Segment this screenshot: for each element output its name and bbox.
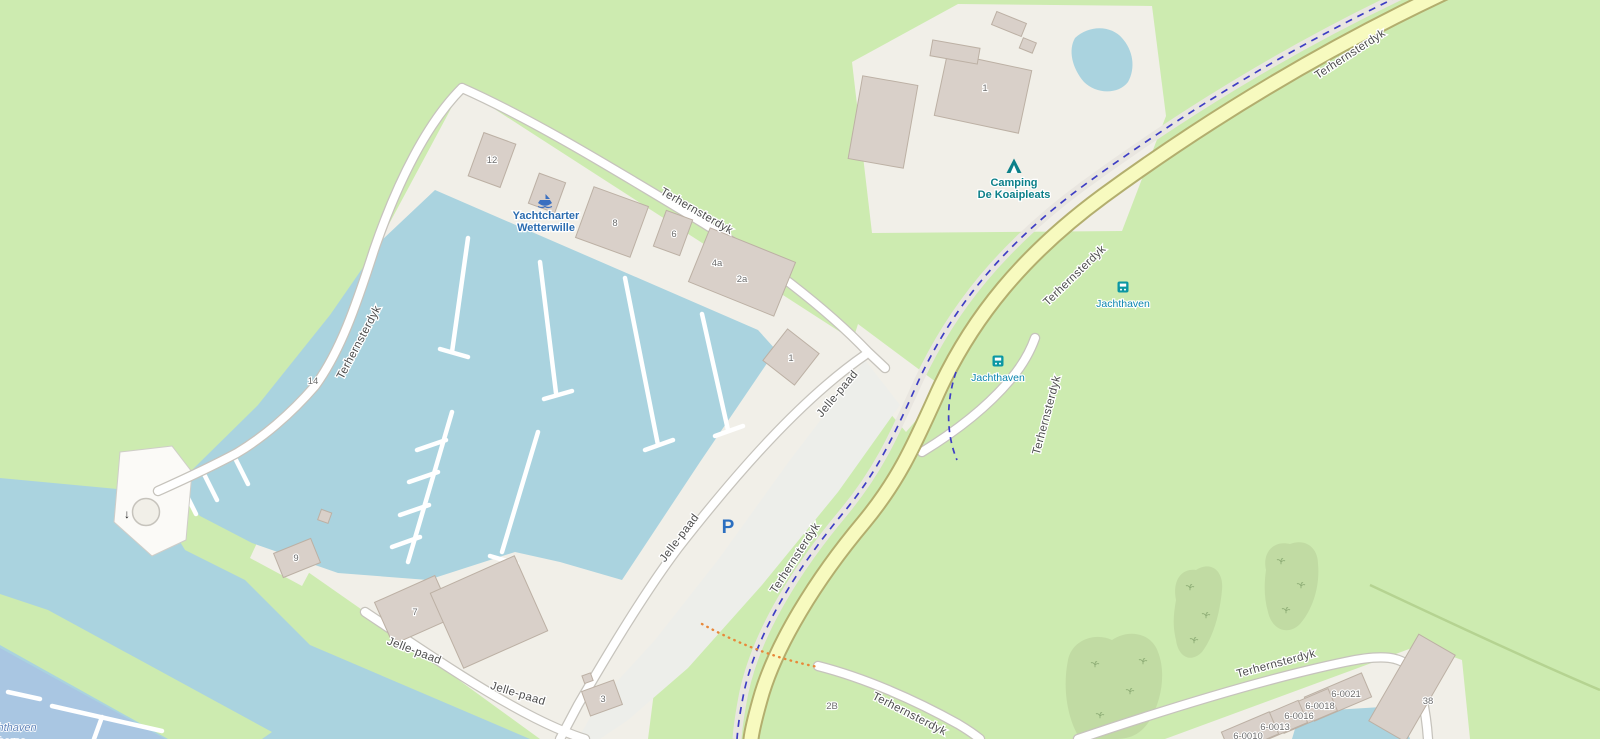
parking-symbol: P — [722, 517, 735, 538]
map-canvas[interactable]: ↓ Terhernsterdyk Terhernsterdyk Terherns… — [0, 0, 1600, 739]
water-label-line1: chthaven — [0, 722, 37, 734]
camping-label-line2[interactable]: De Koaipleats — [978, 189, 1051, 201]
bus-stop-2-label[interactable]: Jachthaven — [1096, 298, 1150, 310]
house-number-6-0021: 6-0021 — [1331, 689, 1361, 700]
house-number-4a: 4a — [712, 258, 723, 269]
house-number-12: 12 — [487, 155, 498, 166]
yachtcharter-label-line2[interactable]: Wetterwille — [517, 222, 575, 234]
house-number-1-marina: 1 — [788, 353, 793, 364]
house-number-7: 7 — [412, 607, 417, 618]
bus-icon-window — [1120, 284, 1126, 287]
house-number-3: 3 — [600, 694, 605, 705]
house-number-1-camp: 1 — [982, 83, 987, 94]
slipway-arrow-icon: ↓ — [124, 507, 130, 521]
bus-stop-2[interactable] — [1118, 282, 1129, 293]
yachtcharter-label[interactable]: Yachtcharter Wetterwille — [513, 210, 580, 234]
house-number-38: 38 — [1423, 696, 1434, 707]
bus-icon-wheel — [1124, 289, 1126, 291]
bus-icon[interactable] — [993, 356, 1004, 367]
bus-icon[interactable] — [1118, 282, 1129, 293]
bus-stop-1-label[interactable]: Jachthaven — [971, 372, 1025, 384]
bus-icon-wheel — [995, 363, 997, 365]
yachtcharter-label-line1[interactable]: Yachtcharter — [513, 210, 580, 222]
house-number-6: 6 — [671, 229, 676, 240]
house-number-2a: 2a — [737, 274, 748, 285]
bus-stop-1[interactable] — [993, 356, 1004, 367]
house-number-14: 14 — [308, 376, 319, 387]
house-number-9: 9 — [293, 553, 298, 564]
house-number-6-0016: 6-0016 — [1284, 711, 1314, 722]
house-number-6-0013: 6-0013 — [1260, 722, 1290, 733]
turning-circle — [133, 499, 160, 526]
bus-icon-window — [995, 358, 1001, 361]
camping-label-line1[interactable]: Camping — [990, 177, 1037, 189]
house-number-2b: 2B — [826, 701, 838, 712]
bus-icon-wheel — [1120, 289, 1122, 291]
bus-icon-wheel — [999, 363, 1001, 365]
house-number-6-0010-partial: 6-0010 — [1233, 731, 1263, 739]
house-number-8: 8 — [612, 218, 617, 229]
